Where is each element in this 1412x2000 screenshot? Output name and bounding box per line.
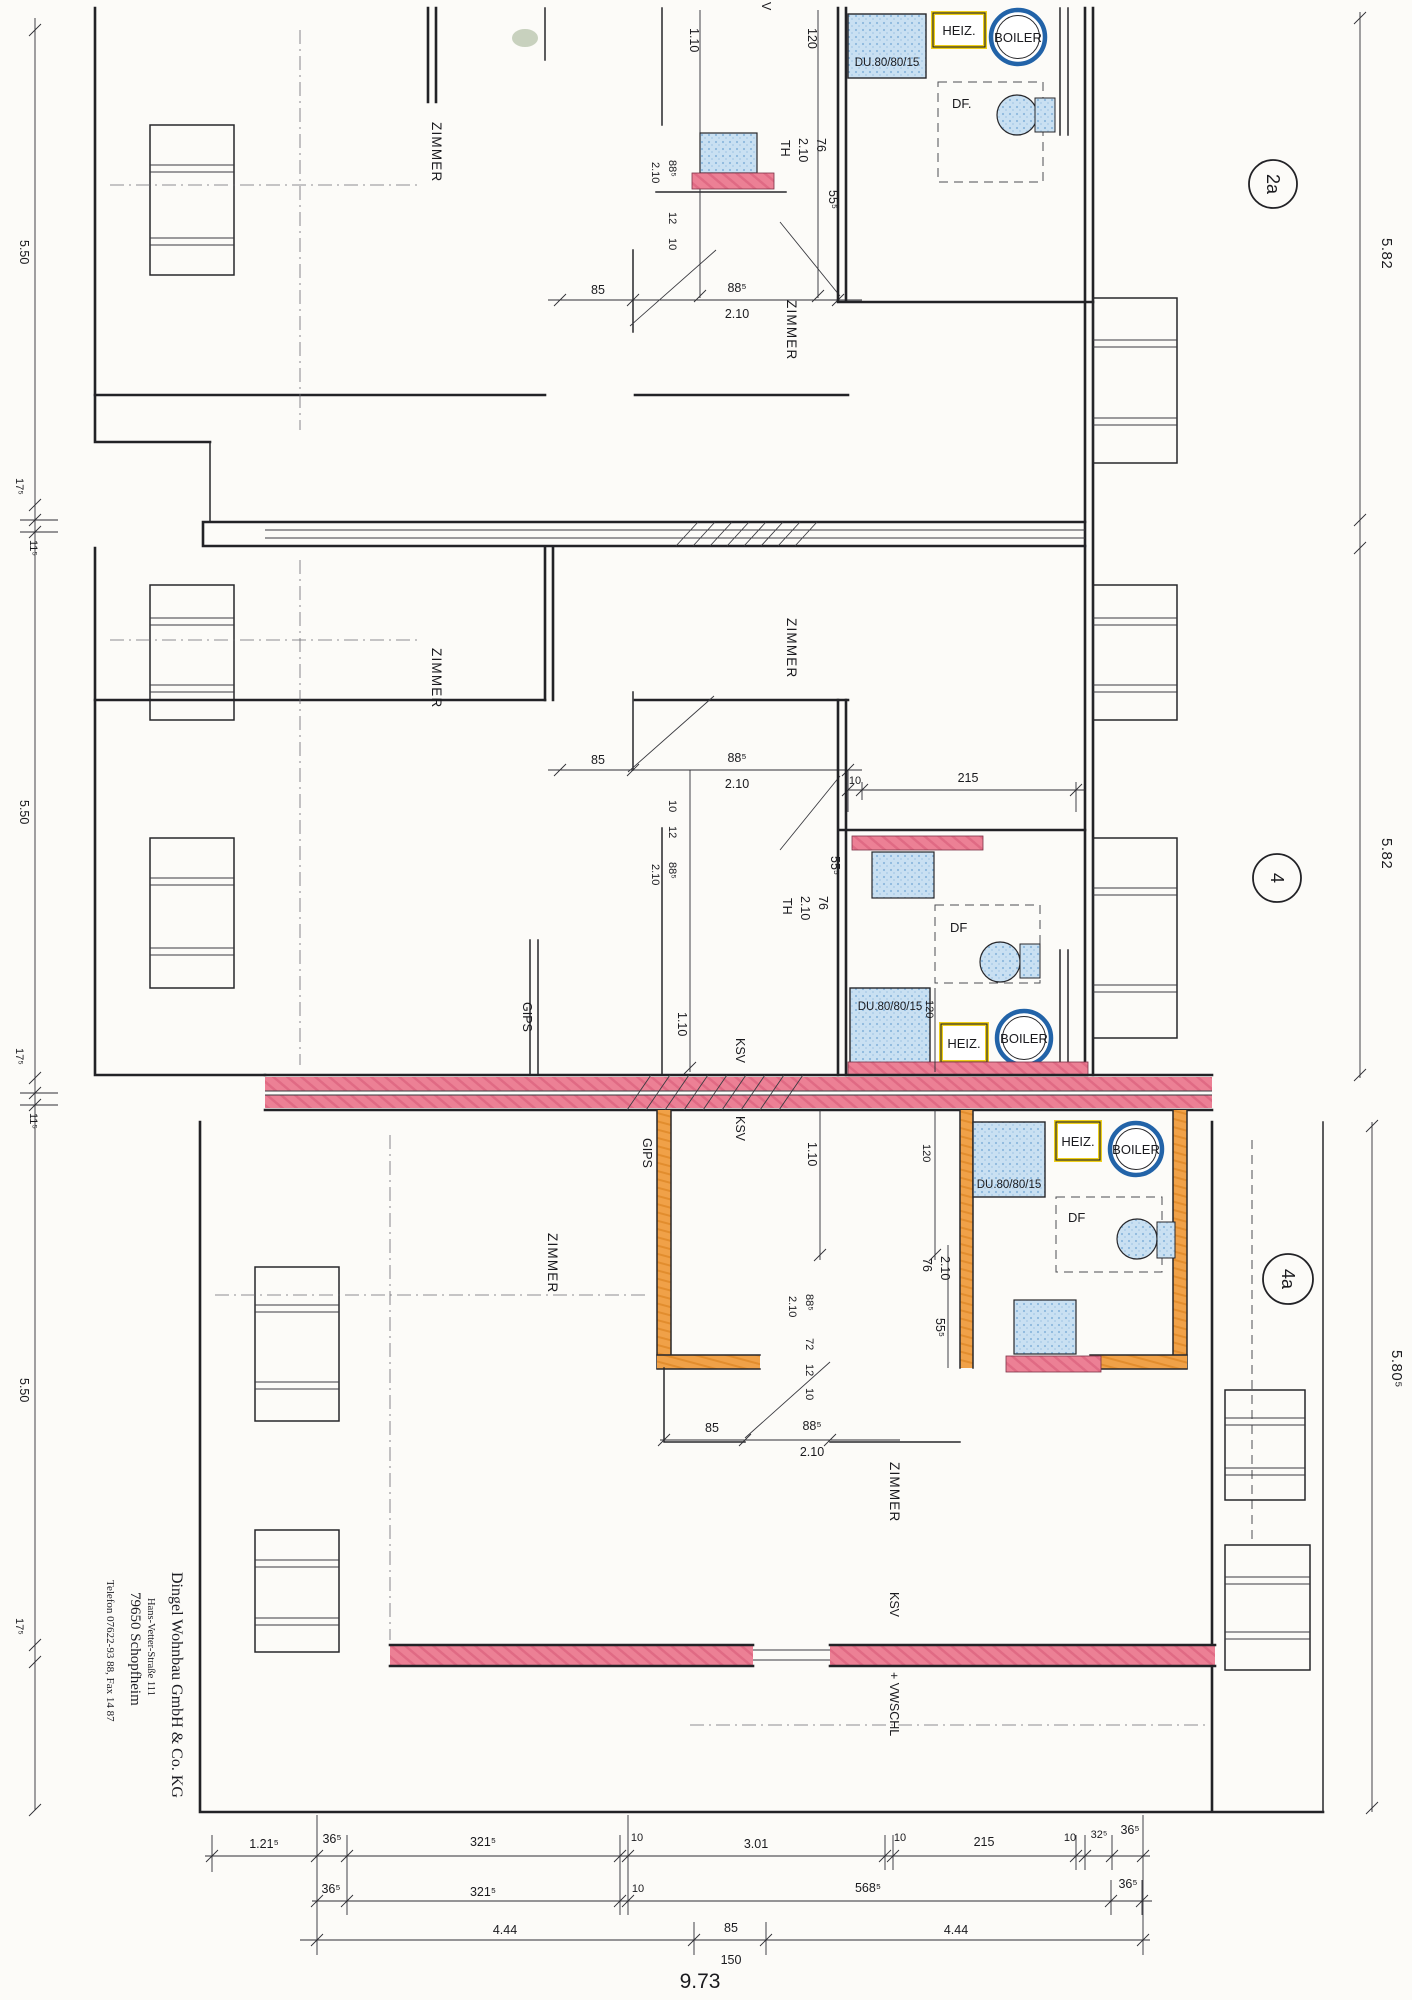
dim-label: 12: [666, 826, 678, 838]
dim-label: 10: [666, 800, 678, 812]
dim-label: 321⁵: [470, 1885, 496, 1899]
right-dimension-chain: 5.82 5.82 5.80⁵: [1354, 12, 1405, 1814]
room-label-zimmer: ZIMMER: [429, 648, 444, 708]
floor-plan-sheet: 5.50 17⁵ 11⁵ 5.50 17⁵ 11⁵ 5.50 17⁵: [0, 0, 1412, 2000]
stamp-city: 79650 Schopfheim: [127, 1592, 143, 1706]
dim-label: 85: [724, 1921, 738, 1935]
skylight-label: DF: [950, 920, 967, 935]
dim-label: 10: [666, 238, 678, 250]
dim-label: 11⁵: [27, 540, 39, 556]
dim-label: 10: [631, 1832, 643, 1844]
window-bay: [1225, 1390, 1305, 1500]
dim-label: 10: [849, 775, 861, 787]
dim-label: 88⁵: [727, 751, 746, 765]
dim-label: 4.44: [944, 1923, 968, 1937]
material-label-ksv: KSV: [733, 1038, 747, 1064]
unit-bubbles: 2a 4 4a: [1249, 160, 1313, 1304]
dim-label: 85: [591, 753, 605, 767]
left-dimension-chain: 5.50 17⁵ 11⁵ 5.50 17⁵ 11⁵ 5.50 17⁵: [13, 18, 58, 1816]
dim-label: 85: [591, 283, 605, 297]
dim-label: 85: [705, 1421, 719, 1435]
material-label-vwschl: + VWSCHL: [887, 1672, 901, 1736]
room-label-zimmer: ZIMMER: [784, 300, 799, 360]
dim-label: 5.82: [1378, 238, 1395, 269]
dim-label: 5.82: [1378, 838, 1395, 869]
dim-label: 1.10: [805, 1142, 819, 1166]
dim-label: 88⁵: [666, 862, 678, 879]
toilet-fixture: [700, 133, 757, 173]
dim-label: 36⁵: [1118, 1877, 1137, 1891]
dim-label: 76: [920, 1258, 934, 1272]
dim-label: 76: [814, 138, 828, 152]
material-label-ksv: KSV: [733, 1116, 747, 1142]
dim-label: 120: [920, 1144, 932, 1162]
window-bay: [255, 1530, 339, 1652]
heater-label: HEIZ.: [947, 1036, 980, 1051]
dim-label: 3.01: [744, 1837, 768, 1851]
dim-label: 32⁵: [1091, 1829, 1108, 1841]
dim-label: 2.10: [725, 777, 749, 791]
dim-label: 72: [803, 1338, 815, 1350]
party-wall-divider: [203, 522, 1085, 546]
window-bay: [1093, 838, 1177, 1038]
dim-label: 88⁵: [727, 281, 746, 295]
dim-label: 120: [805, 28, 819, 49]
dim-label: 321⁵: [470, 1835, 496, 1849]
door-swing: [628, 696, 840, 850]
material-label-gips: GIPS: [640, 1138, 654, 1168]
dim-label: 2.10: [800, 1445, 824, 1459]
dim-label-total: 9.73: [680, 1970, 721, 1993]
dim-label: 215: [974, 1835, 995, 1849]
dim-label: 55⁵: [828, 856, 842, 875]
material-label-gips: GIPS: [520, 1002, 534, 1032]
window-bay: [255, 1267, 339, 1421]
pink-shelf: [852, 836, 983, 850]
unit-2a: V 1.10 120 DU.80/80/15 HEIZ. BOILER DF. …: [95, 2, 1177, 1075]
dim-label: 215: [958, 771, 979, 785]
washbasin: [980, 942, 1020, 982]
stamp-phone: Telefon 07622-93 88, Fax 14 87: [104, 1580, 116, 1722]
shower-tray: [850, 988, 930, 1064]
dim-label: 36⁵: [321, 1882, 340, 1896]
dim-label: TH: [780, 898, 794, 915]
dim-label: 2.10: [938, 1256, 952, 1280]
dim-label: 2.10: [725, 307, 749, 321]
floor-plan-drawing: 5.50 17⁵ 11⁵ 5.50 17⁵ 11⁵ 5.50 17⁵: [0, 0, 1412, 2000]
toilet-fixture: [872, 852, 934, 898]
room-label-zimmer: ZIMMER: [887, 1462, 902, 1522]
dim-label: 2.10: [786, 1296, 798, 1317]
dim-label: 17⁵: [13, 1048, 25, 1065]
window-bay: [150, 125, 234, 275]
stamp-street: Hans-Vetter-Straße 111: [145, 1598, 156, 1696]
bottom-dimension-rows: 1.21⁵ 36⁵ 321⁵ 10 3.01 10 215 10 32⁵ 36⁵…: [205, 1815, 1152, 1993]
dim-label: 2.10: [796, 138, 810, 162]
unit-4a: GIPS 1.10 120 DU.80/80/15 HEIZ. BOILER D…: [200, 1110, 1323, 1812]
dim-label: 5.50: [17, 240, 31, 264]
dim-label: 88⁵: [666, 160, 678, 177]
dim-label: 17⁵: [13, 478, 25, 495]
pink-wall: [390, 1646, 753, 1665]
dim-label: 10: [632, 1883, 644, 1895]
cistern: [1020, 944, 1040, 978]
boiler-label: BOILER: [994, 30, 1042, 45]
dim-label: 2.10: [649, 864, 661, 885]
dim-label: 150: [721, 1953, 742, 1967]
dim-label: 5.80⁵: [1388, 1350, 1405, 1388]
unit-4: ZIMMER ZIMMER 85 88⁵ 2.10 10 215 10 12 8…: [95, 548, 1177, 1076]
room-label-zimmer: ZIMMER: [429, 122, 444, 182]
dim-label: 88⁵: [802, 1419, 821, 1433]
heater-label: HEIZ.: [1061, 1134, 1094, 1149]
cistern: [1035, 98, 1055, 132]
dim-label: 10: [803, 1388, 815, 1400]
dim-label: 17⁵: [13, 1618, 25, 1635]
room-label-zimmer: ZIMMER: [784, 618, 799, 678]
skylight-label: DF: [1068, 1210, 1085, 1225]
dim-label: 36⁵: [1120, 1823, 1139, 1837]
room-label-zimmer: ZIMMER: [545, 1233, 560, 1293]
dim-label: 2.10: [649, 162, 661, 183]
dim-label: 1.21⁵: [249, 1837, 279, 1851]
cistern: [1157, 1222, 1175, 1258]
heater-label: HEIZ.: [942, 23, 975, 38]
dim-label: 2.10: [798, 896, 812, 920]
dim-label: 10: [1064, 1832, 1076, 1844]
dim-label: 55⁵: [826, 190, 840, 209]
dim-label: 4.44: [493, 1923, 517, 1937]
company-stamp: Dingel Wohnbau GmbH & Co. KG Hans-Vetter…: [104, 1572, 185, 1798]
washbasin: [1117, 1219, 1157, 1259]
shower-label: DU.80/80/15: [858, 1001, 923, 1013]
dim-label: 10: [894, 1832, 906, 1844]
washbasin: [997, 95, 1037, 135]
pink-shelf: [692, 173, 774, 189]
pink-wall: [830, 1646, 1215, 1665]
window-bay: [1225, 1545, 1310, 1670]
dim-label: 5.50: [17, 1378, 31, 1402]
dim-label: 55⁵: [933, 1318, 947, 1337]
bubble-label-4a: 4a: [1278, 1269, 1298, 1290]
dim-label: V: [759, 2, 773, 11]
toilet-fixture: [1014, 1300, 1076, 1354]
dim-label: TH: [778, 140, 792, 157]
dim-label: 76: [816, 896, 830, 910]
window-bay: [1093, 585, 1177, 720]
dim-label: 12: [803, 1364, 815, 1376]
dim-label: 12: [666, 212, 678, 224]
dim-label: 5.50: [17, 800, 31, 824]
dim-label: 120: [923, 1000, 935, 1018]
window-bay: [150, 838, 234, 988]
dim-label: 88⁵: [803, 1294, 815, 1311]
bubble-label-4: 4: [1267, 873, 1287, 883]
dim-label: 568⁵: [855, 1881, 881, 1895]
bubble-label-2a: 2a: [1263, 174, 1283, 195]
boiler-label: BOILER: [1112, 1142, 1160, 1157]
dim-label: 1.10: [675, 1012, 689, 1036]
skylight-label: DF.: [952, 96, 972, 111]
shower-label: DU.80/80/15: [977, 1179, 1042, 1191]
dim-label: 1.10: [687, 28, 701, 52]
pink-shelf: [1006, 1356, 1101, 1372]
stamp-company: Dingel Wohnbau GmbH & Co. KG: [168, 1572, 185, 1798]
dim-label: 11⁵: [27, 1113, 39, 1129]
scan-smudge: [512, 29, 538, 47]
shower-label: DU.80/80/15: [855, 57, 920, 69]
boiler-label: BOILER: [1000, 1031, 1048, 1046]
material-label-ksv: KSV: [887, 1592, 901, 1618]
window-bay: [1093, 298, 1177, 463]
dim-label: 36⁵: [322, 1832, 341, 1846]
